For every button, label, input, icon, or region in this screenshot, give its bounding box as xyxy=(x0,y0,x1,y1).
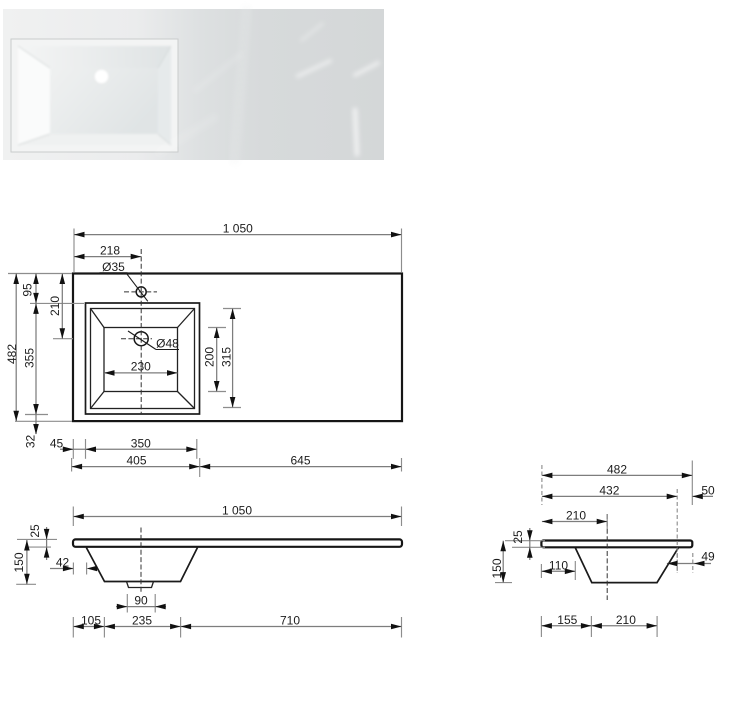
svg-text:645: 645 xyxy=(290,454,310,468)
svg-text:218: 218 xyxy=(100,244,120,258)
svg-text:710: 710 xyxy=(280,614,300,628)
svg-text:210: 210 xyxy=(616,613,636,627)
svg-text:482: 482 xyxy=(5,344,19,364)
svg-text:32: 32 xyxy=(24,435,38,449)
svg-text:210: 210 xyxy=(48,296,62,316)
svg-text:1 050: 1 050 xyxy=(223,222,253,236)
svg-text:230: 230 xyxy=(131,360,151,374)
svg-text:350: 350 xyxy=(131,436,151,450)
svg-text:50: 50 xyxy=(701,483,715,497)
svg-text:90: 90 xyxy=(134,594,148,608)
svg-text:315: 315 xyxy=(220,347,234,367)
svg-text:150: 150 xyxy=(490,558,504,578)
svg-text:Ø48: Ø48 xyxy=(156,337,179,351)
svg-text:405: 405 xyxy=(126,454,146,468)
svg-text:155: 155 xyxy=(557,613,577,627)
svg-text:25: 25 xyxy=(511,530,525,544)
svg-text:49: 49 xyxy=(701,549,715,563)
svg-text:Ø35: Ø35 xyxy=(102,260,125,274)
svg-text:150: 150 xyxy=(12,552,26,572)
svg-text:210: 210 xyxy=(566,509,586,523)
svg-text:105: 105 xyxy=(81,614,101,628)
svg-text:235: 235 xyxy=(132,614,152,628)
svg-text:432: 432 xyxy=(599,483,619,497)
svg-text:482: 482 xyxy=(607,462,627,476)
svg-text:200: 200 xyxy=(203,347,217,367)
svg-text:1 050: 1 050 xyxy=(222,504,252,518)
svg-text:110: 110 xyxy=(549,558,568,572)
svg-text:42: 42 xyxy=(56,556,70,570)
svg-text:25: 25 xyxy=(28,524,42,538)
svg-text:355: 355 xyxy=(23,348,37,368)
svg-text:45: 45 xyxy=(50,436,64,450)
svg-text:95: 95 xyxy=(21,283,35,297)
